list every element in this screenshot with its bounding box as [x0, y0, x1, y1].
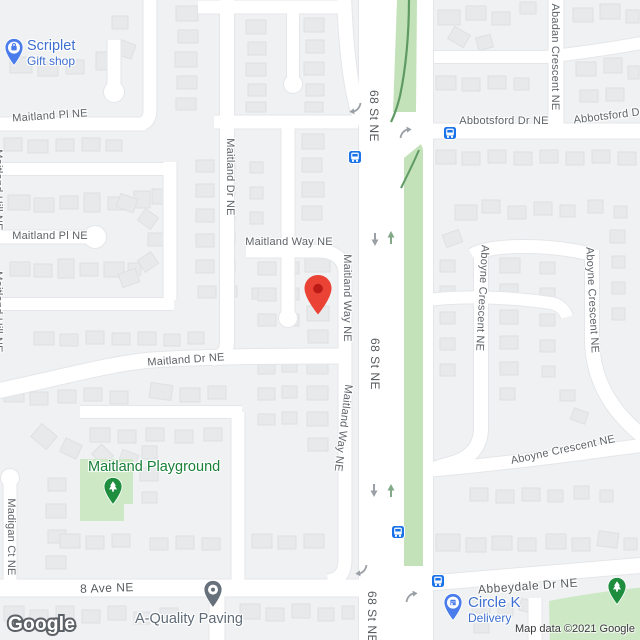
tree-pin-icon[interactable]	[103, 477, 123, 510]
turn-sw-arrow-icon	[349, 101, 363, 115]
poi-label-circle-k[interactable]: Circle K Delivery	[468, 595, 521, 625]
bus-stop-icon[interactable]	[391, 525, 405, 539]
shopping-bag-pin-icon[interactable]	[4, 38, 24, 71]
oneway-up-arrow-icon	[387, 483, 396, 499]
turn-ne-arrow-icon	[404, 590, 418, 604]
map-attribution: Map data ©2021 Google	[515, 623, 635, 635]
bus-stop-icon[interactable]	[348, 150, 362, 164]
poi-name[interactable]: Circle K	[468, 595, 521, 612]
place-pin-icon[interactable]	[203, 580, 223, 613]
poi-category[interactable]: Delivery	[468, 612, 521, 625]
poi-category[interactable]: Gift shop	[27, 55, 75, 68]
store-pin-icon[interactable]	[443, 593, 463, 626]
turn-ne-arrow-icon	[398, 126, 412, 140]
bus-stop-icon[interactable]	[443, 126, 457, 140]
oneway-down-arrow-icon	[370, 482, 379, 498]
oneway-up-arrow-icon	[387, 230, 396, 246]
oneway-down-arrow-icon	[371, 231, 380, 247]
bus-stop-icon[interactable]	[431, 574, 445, 588]
poi-label-scriplet[interactable]: Scriplet Gift shop	[27, 39, 75, 68]
google-logo-text: Google	[8, 614, 75, 635]
poi-label-playground[interactable]: Maitland Playground	[88, 460, 220, 476]
poi-name[interactable]: Maitland Playground	[88, 460, 220, 476]
poi-name[interactable]: Scriplet	[27, 39, 75, 55]
poi-name[interactable]: A-Quality Paving	[135, 612, 243, 628]
traffic-icons-layer	[0, 0, 640, 640]
google-logo[interactable]: Google Google	[8, 614, 75, 636]
map-canvas[interactable]: Maitland Pl NEMaitland Pl NEMaitland Dr …	[0, 0, 640, 640]
poi-label-paving[interactable]: A-Quality Paving	[135, 612, 243, 628]
tree-pin-icon[interactable]	[607, 577, 627, 610]
dropped-pin-marker[interactable]	[304, 275, 332, 320]
turn-sw-arrow-icon	[355, 563, 369, 577]
